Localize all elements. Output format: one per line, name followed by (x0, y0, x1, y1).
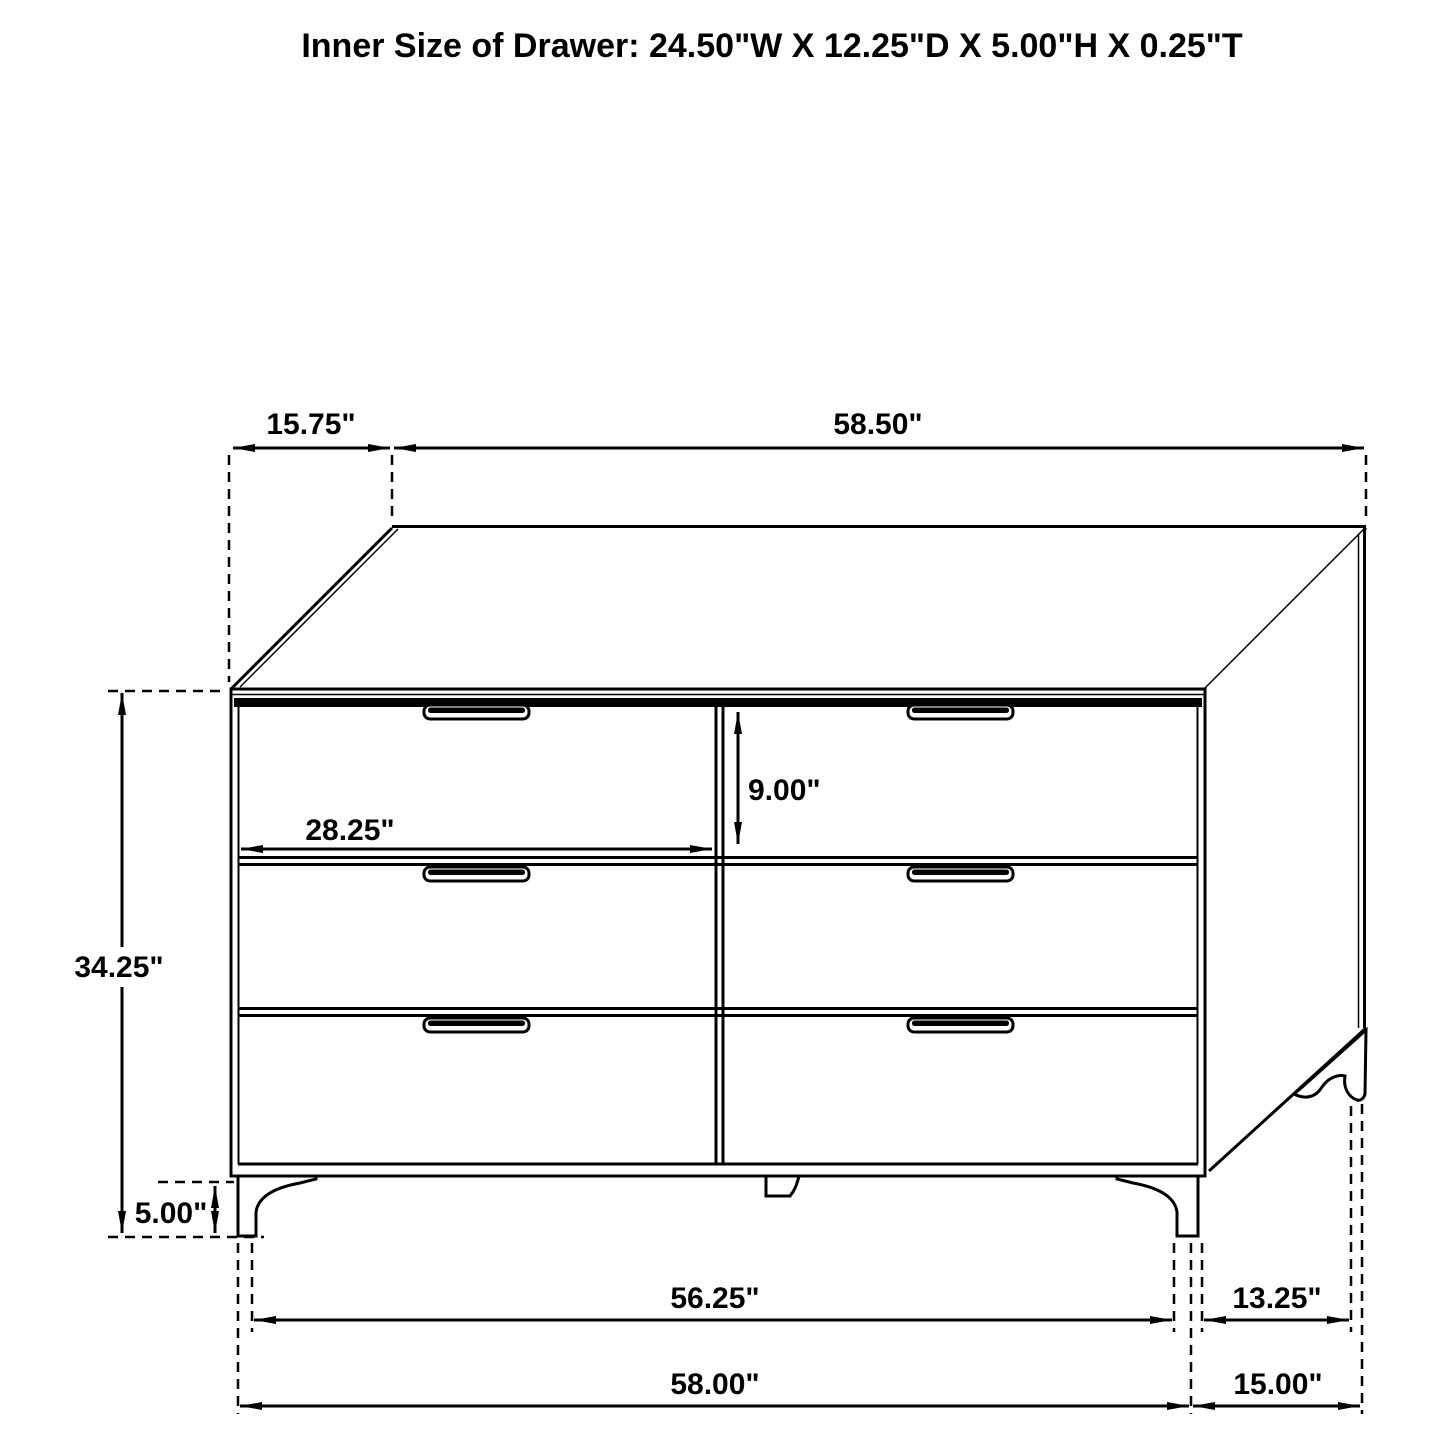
front-face-frame (231, 689, 1205, 1176)
page-title: Inner Size of Drawer: 24.50"W X 12.25"D … (301, 27, 1243, 65)
handle-recess (912, 870, 1009, 876)
front-right-leg (1117, 1176, 1198, 1236)
handle-recess (428, 870, 525, 876)
drawer-handle-bottom-left (424, 1018, 529, 1032)
handle-recess (428, 708, 525, 714)
dim-label-overall-height: 34.25" (74, 951, 163, 984)
top-face-surface (231, 528, 1366, 689)
top-rail-band (234, 698, 1202, 707)
dim-label-base-overall-depth: 15.00" (1233, 1368, 1322, 1401)
dim-label-base-inner-width: 56.25" (670, 1282, 759, 1315)
drawer-handle-bottom-right (908, 1018, 1013, 1032)
handle-recess (428, 1021, 525, 1027)
front-left-leg (238, 1176, 316, 1236)
dim-label-top-depth: 15.75" (266, 408, 355, 441)
drawer-handle-top-right (908, 705, 1013, 719)
drawing-svg: Inner Size of Drawer: 24.50"W X 12.25"D … (0, 0, 1445, 1445)
dim-label-drawer-width: 28.25" (305, 814, 394, 847)
drawer-grid (231, 689, 1205, 1176)
drawer-handle-middle-right (908, 867, 1013, 881)
drawer-handle-middle-left (424, 867, 529, 881)
dresser-dimension-drawing: Inner Size of Drawer: 24.50"W X 12.25"D … (0, 0, 1445, 1445)
handle-recess (912, 1021, 1009, 1027)
drawer-handle-top-left (424, 705, 529, 719)
dim-label-base-overall-width: 58.00" (670, 1368, 759, 1401)
dim-label-drawer-height: 9.00" (748, 774, 821, 807)
dresser-top-face (231, 527, 1366, 695)
dim-label-leg-height: 5.00" (135, 1197, 208, 1230)
dim-label-base-inner-depth: 13.25" (1232, 1282, 1321, 1315)
dim-label-top-width: 58.50" (833, 408, 922, 441)
handle-recess (912, 708, 1009, 714)
dresser-drawing (231, 527, 1366, 1237)
center-support-leg (766, 1176, 799, 1196)
